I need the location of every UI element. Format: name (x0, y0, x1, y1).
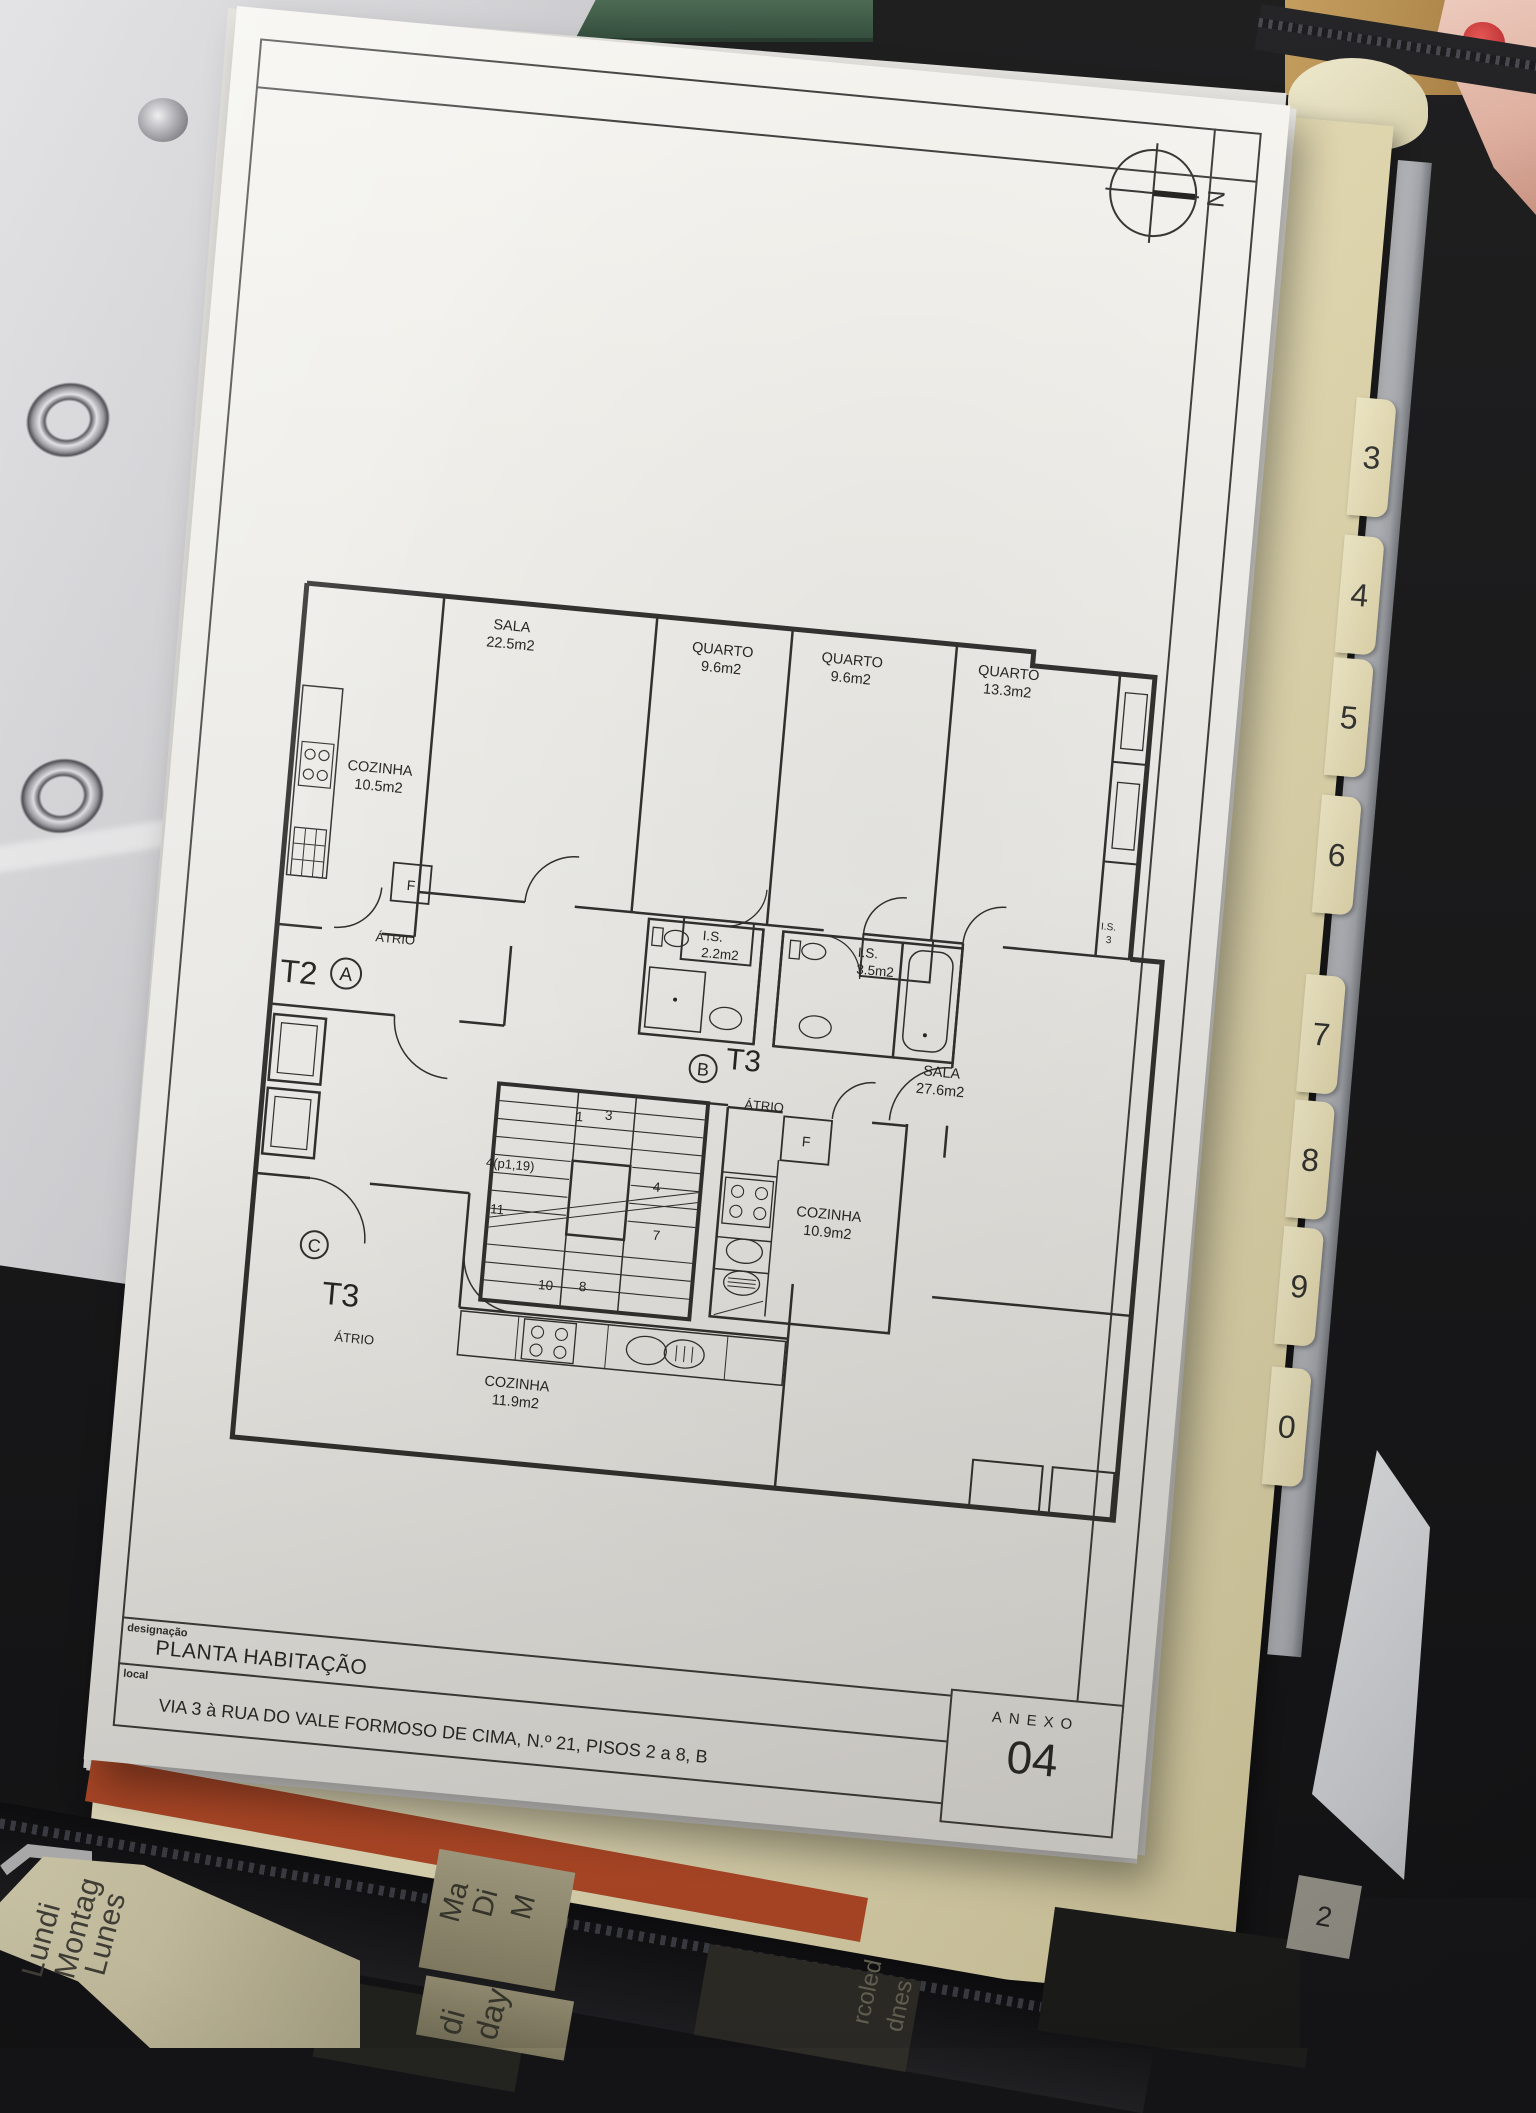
room-label-quarto1-area: 9.6m2 (700, 659, 742, 679)
unit-type-b: T3 (725, 1043, 763, 1079)
hall-label-a: ÁTRIO (375, 929, 416, 948)
unit-letter-a: A (339, 964, 354, 986)
fridge-marker-1: F (406, 877, 416, 894)
tab-label: 3 (1361, 438, 1382, 476)
tab-label: 7 (1311, 1015, 1332, 1053)
north-compass-icon: N (1106, 145, 1201, 241)
room-label-cozinha3-area: 11.9m2 (491, 1392, 539, 1412)
tab-label: 0 (1276, 1408, 1297, 1446)
floor-plan-drawing: SALA 22.5m2 QUARTO 9.6m2 QUARTO 9.6m2 QU… (215, 534, 1232, 1549)
rivet-icon (138, 98, 188, 142)
stair-num-3: 3 (604, 1108, 613, 1124)
stair-num-11: 11 (489, 1201, 504, 1217)
compass-north-label: N (1200, 189, 1229, 209)
room-label-is1-name: I.S. (702, 928, 723, 945)
room-label-sala2-area: 27.6m2 (915, 1081, 965, 1101)
room-label-sala1-name: SALA (493, 617, 532, 636)
stair-num-4: 4 (652, 1179, 661, 1195)
binder-tab-2-partial: 2 (1286, 1875, 1362, 1959)
tab-label: 8 (1300, 1141, 1321, 1179)
tab-label: 6 (1326, 836, 1347, 874)
room-label-quarto2-area: 9.6m2 (830, 669, 872, 689)
room-label-sala2-name: SALA (923, 1063, 962, 1082)
room-label-sala1-area: 22.5m2 (486, 634, 536, 654)
stair-num-10: 10 (538, 1277, 554, 1293)
unit-type-c: T3 (321, 1275, 361, 1314)
hall-label-c: ÁTRIO (334, 1329, 375, 1348)
stair-num-1: 1 (575, 1109, 584, 1125)
unit-letter-b: B (696, 1059, 710, 1080)
paper-corner-right (1312, 1450, 1430, 1880)
fridge-marker-2: F (801, 1133, 811, 1150)
stair-num-7: 7 (652, 1228, 661, 1244)
local-label: local (123, 1668, 149, 1682)
anexo-box: ANEXO 04 (939, 1689, 1124, 1839)
tab-label: 9 (1289, 1267, 1310, 1305)
room-label-cozinha1-area: 10.5m2 (354, 777, 404, 797)
room-label-is3-area: 3 (1105, 935, 1112, 947)
tab-label: 5 (1338, 698, 1359, 736)
room-label-is3-name: I.S. (1101, 921, 1117, 933)
tab-label: 4 (1349, 576, 1370, 614)
room-label-is2-area: 3.5m2 (856, 962, 895, 980)
room-label-quarto3-area: 13.3m2 (982, 681, 1032, 701)
room-label-is2-name: I.S. (857, 945, 878, 962)
tab-label: 2 (1314, 1900, 1335, 1934)
unit-letter-c: C (307, 1235, 322, 1256)
unit-type-a: T2 (279, 952, 319, 991)
room-label-cozinha2-area: 10.9m2 (803, 1223, 853, 1243)
hall-label-b: ÁTRIO (744, 1097, 785, 1116)
floor-plan-sheet: N (84, 6, 1291, 1859)
stair-num-8: 8 (578, 1279, 587, 1295)
